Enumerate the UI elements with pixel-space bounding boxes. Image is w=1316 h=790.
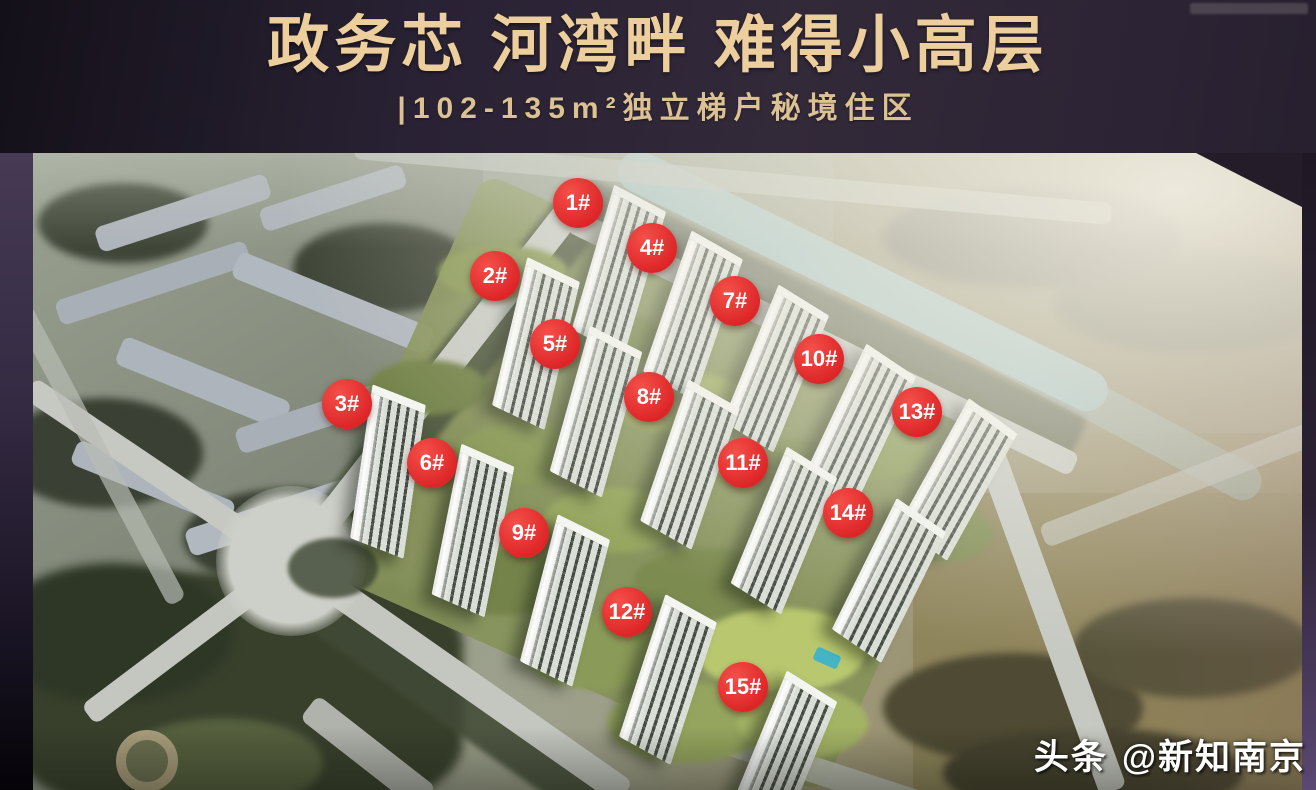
building-marker-15: 15# [718, 662, 768, 712]
display-board-photo: 政务芯 河湾畔 难得小高层 |102-135m²独立梯户秘境住区 [0, 0, 1316, 790]
board-frame-right [1302, 153, 1316, 790]
building-marker-7: 7# [710, 276, 760, 326]
watermark-brand: 头条 [1034, 738, 1108, 777]
building-marker-2: 2# [470, 251, 520, 301]
building-marker-13: 13# [892, 387, 942, 437]
watermark-account: @新知南京 [1122, 738, 1306, 777]
building-marker-12: 12# [602, 587, 652, 637]
page-title: 政务芯 河湾畔 难得小高层 [0, 0, 1316, 81]
building-marker-14: 14# [823, 488, 873, 538]
building-marker-5: 5# [530, 319, 580, 369]
building-marker-10: 10# [794, 334, 844, 384]
building-marker-6: 6# [407, 438, 457, 488]
board-frame-left [0, 153, 33, 790]
page-subtitle: |102-135m²独立梯户秘境住区 [0, 81, 1316, 127]
header-band: 政务芯 河湾畔 难得小高层 |102-135m²独立梯户秘境住区 [0, 0, 1316, 153]
corner-caption [1190, 3, 1308, 14]
building-marker-9: 9# [499, 508, 549, 558]
building-marker-8: 8# [624, 372, 674, 422]
building-marker-1: 1# [553, 178, 603, 228]
aerial-site-plan: 1#2#3#4#5#6#7#8#9#10#11#12#13#14#15# [33, 153, 1302, 790]
building-marker-3: 3# [322, 379, 372, 429]
markers-layer: 1#2#3#4#5#6#7#8#9#10#11#12#13#14#15# [33, 153, 1302, 790]
building-marker-11: 11# [718, 438, 768, 488]
building-marker-4: 4# [627, 223, 677, 273]
watermark: 头条@新知南京 [1034, 729, 1306, 780]
